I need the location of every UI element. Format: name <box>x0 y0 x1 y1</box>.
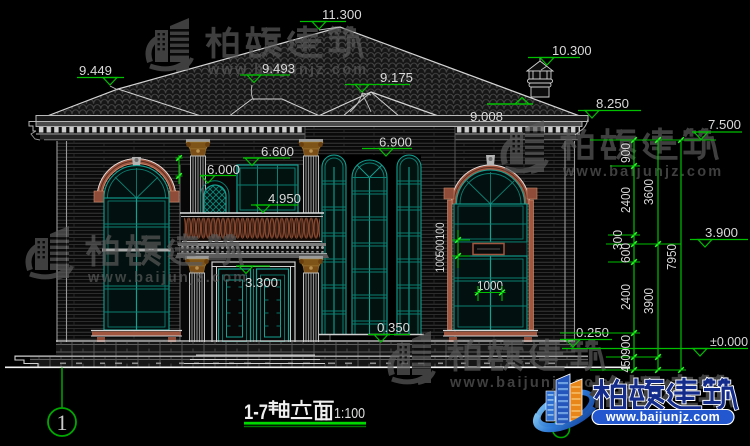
svg-text:6.000: 6.000 <box>207 162 240 177</box>
svg-text:2400: 2400 <box>619 187 633 213</box>
svg-text:www.baijunjz.com: www.baijunjz.com <box>449 375 610 391</box>
svg-text:8.250: 8.250 <box>596 96 629 111</box>
svg-text:3.300: 3.300 <box>245 275 278 290</box>
svg-text:1000: 1000 <box>477 279 503 293</box>
svg-text:6.900: 6.900 <box>379 135 412 150</box>
svg-text:900: 900 <box>619 143 633 163</box>
svg-text:600: 600 <box>619 243 633 263</box>
svg-text:9.175: 9.175 <box>380 70 413 85</box>
svg-text:±0.000: ±0.000 <box>710 334 748 349</box>
svg-text:6.600: 6.600 <box>261 144 294 159</box>
svg-text:3.900: 3.900 <box>705 225 738 240</box>
svg-text:1-7: 1-7 <box>244 401 268 424</box>
svg-text:2400: 2400 <box>619 284 633 310</box>
svg-text:www.baijunjz.com: www.baijunjz.com <box>605 410 720 424</box>
svg-text:3900: 3900 <box>642 288 656 314</box>
svg-text:0.350: 0.350 <box>377 320 410 335</box>
svg-text:11.300: 11.300 <box>322 7 362 22</box>
svg-text:7.500: 7.500 <box>708 117 741 132</box>
svg-text:www.baijunjz.com: www.baijunjz.com <box>87 270 248 286</box>
svg-text:450: 450 <box>619 354 633 372</box>
svg-text:10.300: 10.300 <box>552 43 592 58</box>
svg-text:4.950: 4.950 <box>268 191 301 206</box>
svg-text:900: 900 <box>619 335 633 355</box>
svg-text:3600: 3600 <box>642 179 656 205</box>
svg-text:100: 100 <box>435 256 447 273</box>
svg-text:7950: 7950 <box>665 244 679 270</box>
svg-text:9.008: 9.008 <box>470 109 503 124</box>
svg-text:100: 100 <box>435 223 447 240</box>
svg-text:9.493: 9.493 <box>262 61 295 76</box>
svg-text:1:100: 1:100 <box>334 405 365 422</box>
svg-text:500: 500 <box>435 240 447 257</box>
svg-text:www.baijunjz.com: www.baijunjz.com <box>562 164 723 180</box>
svg-text:1: 1 <box>57 410 68 435</box>
svg-text:9.449: 9.449 <box>79 63 112 78</box>
